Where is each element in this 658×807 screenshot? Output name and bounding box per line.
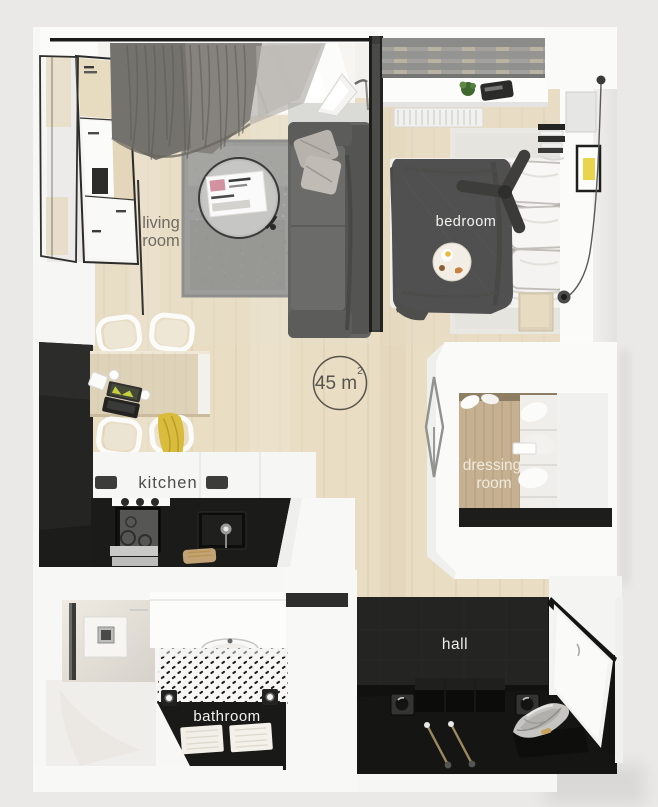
svg-text:2: 2 [357,365,363,377]
svg-text:45 m: 45 m [315,373,357,394]
svg-text:living: living [142,214,180,232]
svg-text:room: room [476,475,511,492]
svg-text:dressing: dressing [463,457,522,474]
svg-text:hall: hall [442,636,468,653]
svg-text:bathroom: bathroom [193,708,260,725]
svg-text:kitchen: kitchen [138,474,197,492]
svg-text:room: room [142,232,180,250]
svg-text:bedroom: bedroom [436,214,497,230]
